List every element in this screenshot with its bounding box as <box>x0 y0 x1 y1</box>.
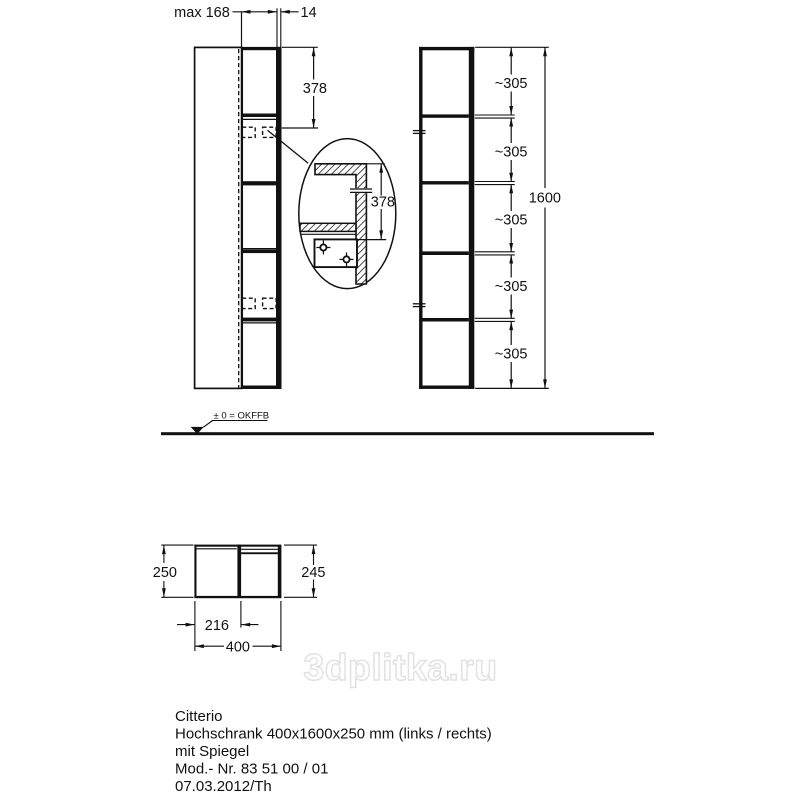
svg-text:07.03.2012/Th: 07.03.2012/Th <box>175 778 272 795</box>
svg-text:~305: ~305 <box>495 213 528 229</box>
svg-text:216: 216 <box>205 618 229 634</box>
svg-text:~305: ~305 <box>495 279 528 295</box>
svg-text:~305: ~305 <box>495 145 528 161</box>
svg-text:378: 378 <box>371 195 395 211</box>
svg-text:Mod.- Nr. 83 51 00 / 01: Mod.- Nr. 83 51 00 / 01 <box>175 761 328 778</box>
svg-text:400: 400 <box>226 639 250 655</box>
svg-text:250: 250 <box>153 565 177 581</box>
svg-text:1600: 1600 <box>529 191 561 207</box>
svg-text:14: 14 <box>301 5 317 21</box>
svg-text:245: 245 <box>301 565 325 581</box>
svg-text:Hochschrank 400x1600x250 mm (l: Hochschrank 400x1600x250 mm (links / rec… <box>175 726 492 743</box>
svg-text:~305: ~305 <box>495 347 528 363</box>
svg-text:Citterio: Citterio <box>175 708 223 725</box>
svg-text:~305: ~305 <box>495 76 528 92</box>
svg-text:378: 378 <box>303 81 327 97</box>
svg-text:3dplitka.ru: 3dplitka.ru <box>304 646 498 688</box>
svg-text:mit Spiegel: mit Spiegel <box>175 743 249 760</box>
svg-text:± 0 = OKFFB: ± 0 = OKFFB <box>214 411 270 422</box>
svg-text:max 168: max 168 <box>174 5 230 21</box>
